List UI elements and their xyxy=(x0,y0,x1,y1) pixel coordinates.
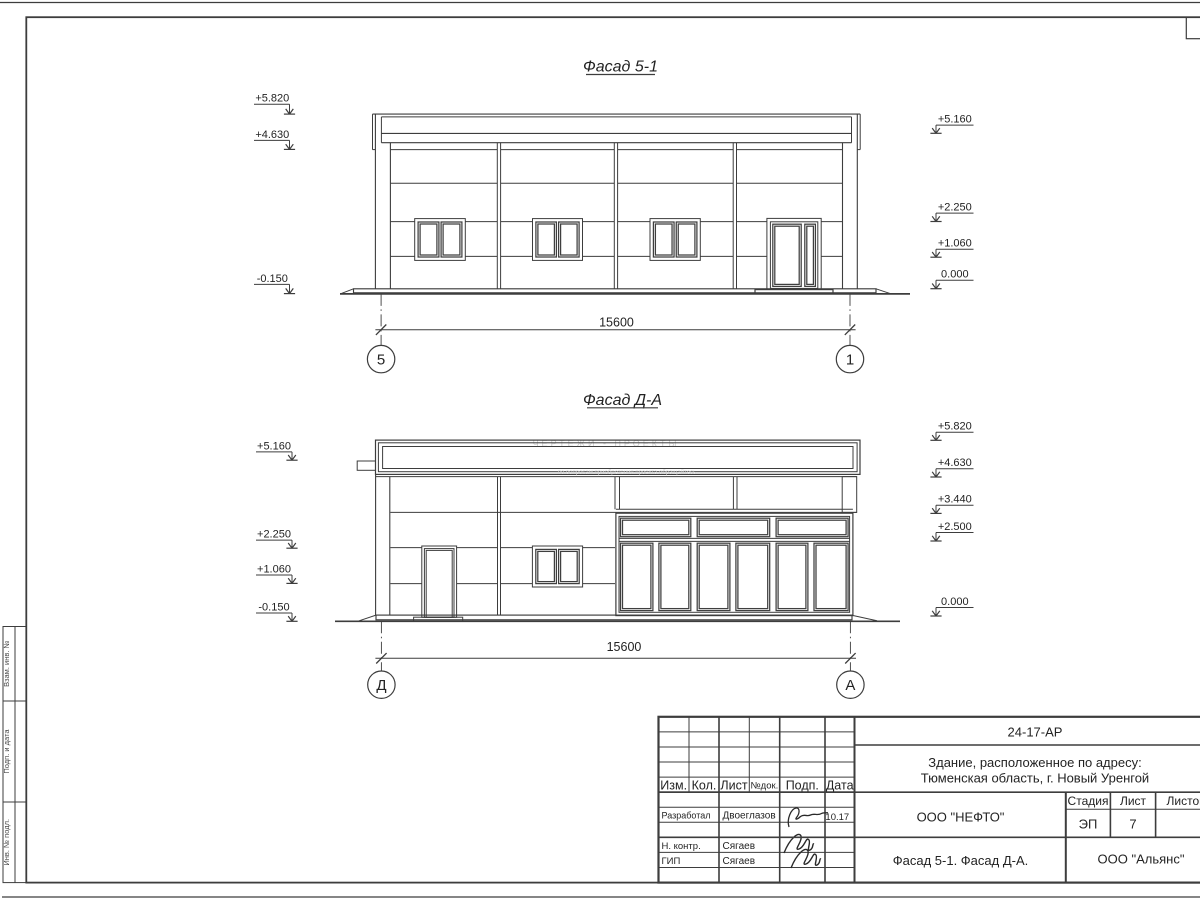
svg-text:ООО "НЕФТО": ООО "НЕФТО" xyxy=(917,810,1005,825)
svg-text:15600: 15600 xyxy=(599,315,634,329)
svg-text:ООО "Альянс": ООО "Альянс" xyxy=(1098,851,1185,866)
svg-text:Здание, расположенное по адрес: Здание, расположенное по адресу: xyxy=(928,755,1141,770)
svg-text:Двоеглазов: Двоеглазов xyxy=(723,811,776,822)
svg-text:Подп. и дата: Подп. и дата xyxy=(2,729,11,774)
svg-text:Д: Д xyxy=(376,677,386,694)
svg-text:Сягаев: Сягаев xyxy=(723,856,756,867)
svg-text:№док.: №док. xyxy=(750,781,778,792)
svg-text:Дата: Дата xyxy=(826,778,854,792)
svg-text:ЭП: ЭП xyxy=(1079,817,1098,832)
svg-text:Фасад 5-1. Фасад Д-А.: Фасад 5-1. Фасад Д-А. xyxy=(893,853,1029,868)
svg-text:Стадия: Стадия xyxy=(1068,794,1109,808)
svg-text:+4.630: +4.630 xyxy=(255,129,289,141)
svg-text:+5.160: +5.160 xyxy=(257,440,291,452)
svg-text:+1.060: +1.060 xyxy=(257,563,291,575)
svg-text:Кол.: Кол. xyxy=(692,778,717,792)
svg-text:+4.630: +4.630 xyxy=(938,457,972,469)
svg-text:+5.820: +5.820 xyxy=(255,93,289,105)
svg-text:Взам. инв. №: Взам. инв. № xyxy=(2,640,11,686)
svg-text:+1.060: +1.060 xyxy=(938,238,972,250)
svg-text:+5.160: +5.160 xyxy=(938,114,972,126)
svg-text:+2.500: +2.500 xyxy=(938,521,972,533)
svg-text:15600: 15600 xyxy=(607,640,642,654)
svg-text:-0.150: -0.150 xyxy=(257,273,288,285)
svg-text:+2.250: +2.250 xyxy=(257,529,291,541)
svg-text:Фасад 5-1: Фасад 5-1 xyxy=(583,58,658,75)
svg-text:1: 1 xyxy=(846,352,854,369)
svg-text:10.17: 10.17 xyxy=(825,812,849,823)
svg-text:0.000: 0.000 xyxy=(941,596,969,608)
svg-text:Лист: Лист xyxy=(1120,794,1147,808)
svg-text:ГИП: ГИП xyxy=(662,856,681,867)
svg-text:7: 7 xyxy=(1129,817,1136,832)
svg-text:Инв. № подл.: Инв. № подл. xyxy=(2,819,11,866)
svg-text:24-17-АР: 24-17-АР xyxy=(1008,725,1063,740)
svg-text:+3.440: +3.440 xyxy=(938,494,972,506)
svg-text:по вопросам приобретения проек: по вопросам приобретения проекта обращай… xyxy=(558,469,696,476)
svg-text:+5.820: +5.820 xyxy=(938,421,972,433)
svg-text:Тюменская область, г. Новый Ур: Тюменская область, г. Новый Уренгой xyxy=(921,771,1149,786)
svg-text:Н. контр.: Н. контр. xyxy=(662,841,701,852)
svg-text:Листов: Листов xyxy=(1167,794,1200,808)
svg-text:Сягаев: Сягаев xyxy=(723,841,756,852)
svg-text:+2.250: +2.250 xyxy=(938,202,972,214)
svg-text:-0.150: -0.150 xyxy=(258,601,289,613)
svg-text:Фасад Д-А: Фасад Д-А xyxy=(583,392,662,409)
svg-text:Лист: Лист xyxy=(720,778,747,792)
svg-text:Изм.: Изм. xyxy=(660,778,687,792)
svg-text:0.000: 0.000 xyxy=(941,269,969,281)
svg-text:5: 5 xyxy=(377,352,385,369)
svg-text:Подп.: Подп. xyxy=(786,778,819,792)
svg-text:Разработал: Разработал xyxy=(662,810,711,820)
svg-text:А: А xyxy=(845,677,855,694)
